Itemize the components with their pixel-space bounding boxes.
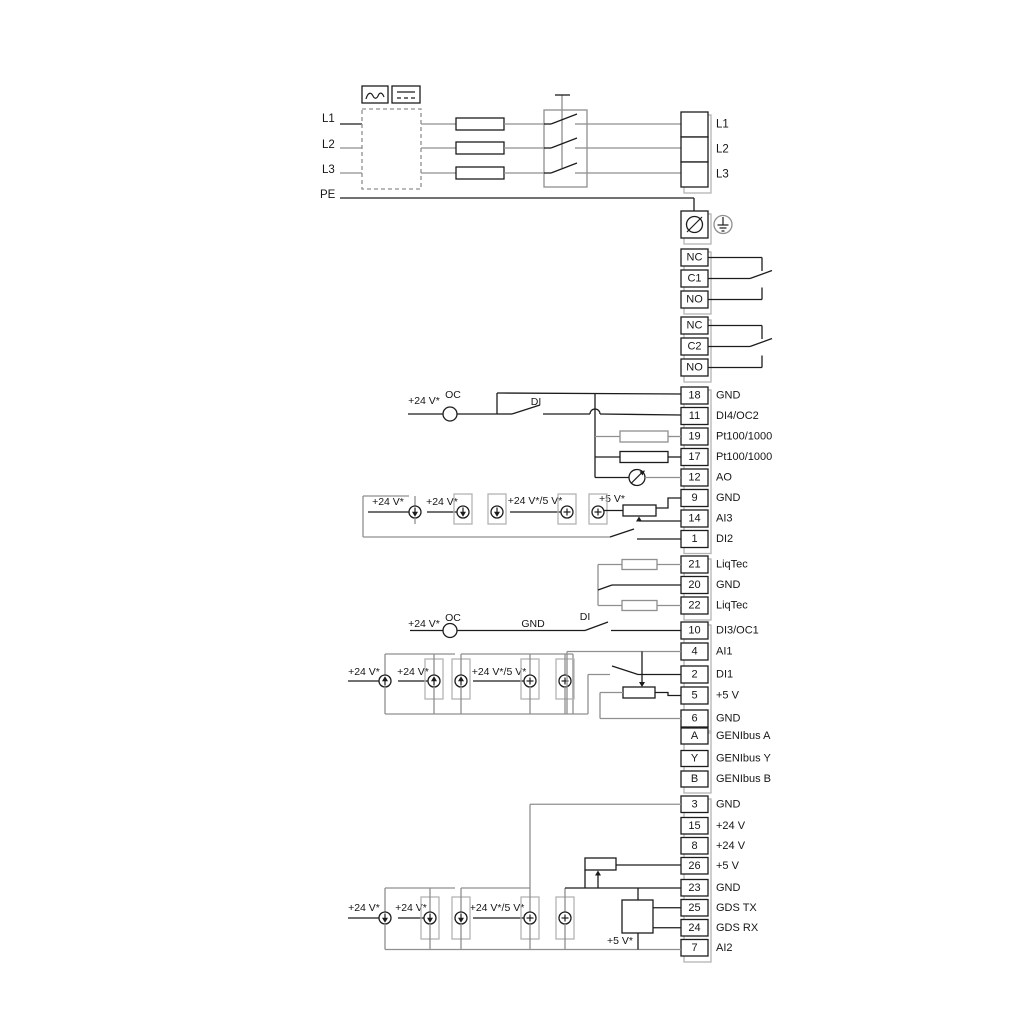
terminal-number: B (691, 773, 698, 785)
label: +24 V* (408, 395, 440, 407)
arrowhead-icon (595, 871, 601, 876)
resistor-symbol (622, 560, 657, 570)
terminal-label: +5 V (716, 860, 740, 872)
terminal-label: DI2 (716, 533, 733, 545)
wiring-diagram: L1L2L3PEL1L2L3NCC1NONCC2NO18GND11DI4/OC2… (0, 0, 1024, 1024)
resistor-symbol (622, 601, 657, 611)
terminal-label: LiqTec (716, 559, 748, 571)
potentiometer-symbol (623, 687, 655, 698)
potentiometer-symbol (585, 858, 616, 870)
rcd-dashed-box (362, 109, 421, 189)
terminal-label: LiqTec (716, 600, 748, 612)
terminal-label: AO (716, 472, 732, 484)
terminal-label: GND (716, 798, 741, 810)
label: +5 V* (607, 935, 633, 947)
terminal-number: 24 (688, 922, 700, 934)
label: DI (580, 611, 591, 623)
terminal-number: 20 (688, 579, 700, 591)
gds-sensor-box (622, 900, 653, 933)
terminal-number: 1 (691, 533, 697, 545)
input-label-l1: L1 (322, 113, 335, 125)
terminal-number: 8 (691, 840, 697, 852)
resistor-symbol (620, 431, 668, 442)
terminal-label: GDS RX (716, 922, 759, 934)
terminal-number: 6 (691, 713, 697, 725)
terminal-box (681, 112, 708, 137)
terminal-number: 25 (688, 902, 700, 914)
switch-blade (551, 114, 577, 124)
terminal-number: 11 (689, 410, 700, 422)
terminal-label: DI3/OC1 (716, 625, 759, 637)
terminal-label: +24 V (716, 840, 746, 852)
relay-switch-blade (750, 271, 772, 279)
relay-terminal-label: NC (687, 320, 703, 332)
wire-to-9 (656, 498, 681, 508)
terminal-number: Y (691, 753, 699, 765)
terminal-number: 7 (691, 942, 697, 954)
label: +24 V*/5 V* (470, 902, 525, 914)
terminal-number: 9 (691, 492, 697, 504)
di-switch-blade (512, 405, 540, 414)
terminal-label: GND (716, 579, 741, 591)
label: OC (445, 612, 461, 624)
di2-switch-blade (610, 529, 634, 537)
fuse-symbol (456, 118, 504, 130)
terminal-number: 3 (691, 798, 697, 810)
terminal-number: 17 (688, 451, 700, 463)
terminal-number: 26 (688, 860, 700, 872)
switch-blade (551, 138, 577, 148)
terminal-label: GENIbus B (716, 773, 771, 785)
input-label-l3: L3 (322, 164, 335, 176)
label: +24 V* (348, 902, 380, 914)
label: +24 V* (348, 666, 380, 678)
output-label: L1 (716, 119, 729, 131)
relay-terminal-label: NC (687, 252, 703, 264)
di-switch-blade (585, 622, 608, 631)
relay-terminal-label: C2 (687, 341, 701, 353)
label: OC (445, 389, 461, 401)
terminal-label: +5 V (716, 690, 740, 702)
terminal-label: GND (716, 882, 741, 894)
label: +24 V* (395, 902, 427, 914)
potentiometer-symbol (623, 505, 656, 516)
wire-to-20 (598, 585, 612, 590)
terminal-number: 5 (691, 690, 697, 702)
rcd-ac-symbol-box (362, 86, 388, 103)
fuse-symbol (456, 142, 504, 154)
switch-blade (551, 163, 577, 173)
resistor-symbol (620, 452, 668, 463)
terminal-number: 4 (691, 646, 697, 658)
wire-to-18 (497, 393, 681, 394)
relay-terminal-label: C1 (687, 273, 701, 285)
open-collector-icon (443, 624, 457, 638)
input-label-pe: PE (320, 189, 336, 201)
relay-terminal-label: NO (686, 294, 703, 306)
terminal-label: GND (716, 713, 741, 725)
label: +24 V* (397, 666, 429, 678)
sine-wave-icon (366, 93, 384, 99)
terminal-number: 23 (688, 882, 700, 894)
label: +5 V* (599, 493, 625, 505)
relay-switch-blade (750, 339, 772, 347)
wiring-diagram-page: L1L2L3PEL1L2L3NCC1NONCC2NO18GND11DI4/OC2… (0, 0, 1024, 1024)
terminal-number: 14 (688, 513, 700, 525)
terminal-label: GENIbus Y (716, 753, 771, 765)
terminal-label: +24 V (716, 820, 746, 832)
arrowhead-icon (639, 682, 645, 687)
terminal-label: DI1 (716, 669, 733, 681)
terminal-label: Pt100/1000 (716, 451, 772, 463)
terminal-label: GENIbus A (716, 730, 771, 742)
relay-terminal-label: NO (686, 362, 703, 374)
label: +24 V* (408, 618, 440, 630)
fuse-symbol (456, 167, 504, 179)
label: +24 V* (426, 496, 458, 508)
label: GND (521, 618, 545, 630)
terminal-number: 12 (688, 472, 700, 484)
terminal-box (681, 137, 708, 162)
input-label-l2: L2 (322, 139, 335, 151)
terminal-number: 22 (688, 600, 700, 612)
di1-switch-blade (612, 666, 638, 675)
open-collector-icon (443, 407, 457, 421)
terminal-number: 10 (688, 625, 700, 637)
terminal-label: GND (716, 390, 741, 402)
rcd-dc-symbol-box (392, 86, 420, 103)
output-label: L2 (716, 144, 729, 156)
terminal-number: 2 (691, 669, 697, 681)
wire-to-5 (655, 693, 681, 696)
terminal-label: AI2 (716, 942, 733, 954)
label: +24 V*/5 V* (508, 495, 563, 507)
terminal-label: DI4/OC2 (716, 410, 759, 422)
terminal-label: GND (716, 492, 741, 504)
terminal-label: AI3 (716, 513, 733, 525)
wire-to-11 (600, 414, 681, 415)
terminal-number: 18 (688, 390, 700, 402)
terminal-box (681, 162, 708, 187)
terminal-number: 21 (688, 559, 700, 571)
terminal-number: A (691, 730, 699, 742)
terminal-label: Pt100/1000 (716, 431, 772, 443)
label: +24 V* (372, 496, 404, 508)
terminal-number: 15 (688, 820, 700, 832)
label: +24 V*/5 V* (472, 666, 527, 678)
terminal-label: GDS TX (716, 902, 757, 914)
terminal-number: 19 (688, 431, 700, 443)
output-label: L3 (716, 169, 729, 181)
terminal-label: AI1 (716, 646, 733, 658)
